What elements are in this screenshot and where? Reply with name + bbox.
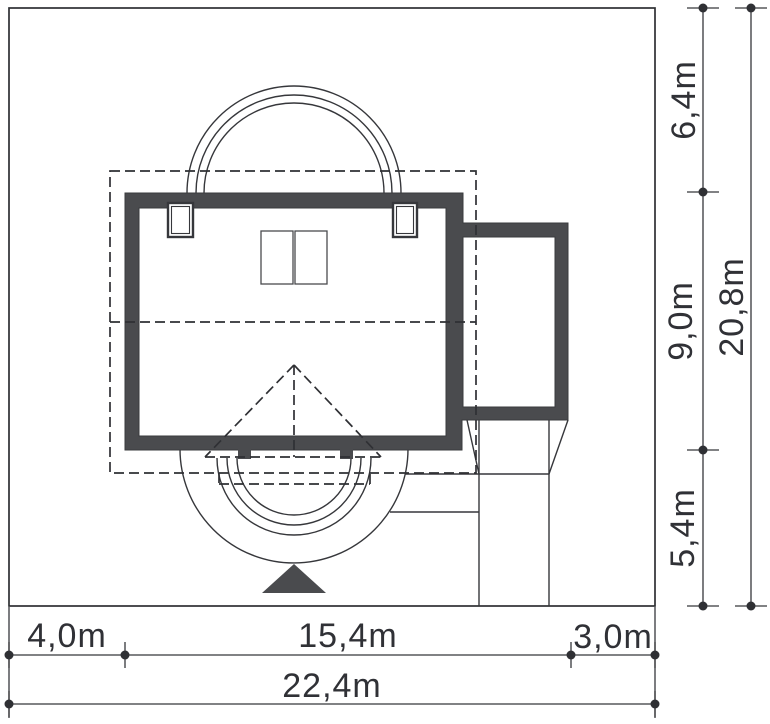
dim-label-bottom-total-22-4m: 22,4m (282, 669, 382, 703)
site-plan-drawing (0, 0, 770, 724)
dim-label-right-9-0m: 9,0m (664, 281, 698, 361)
dim-label-bottom-4-0m: 4,0m (27, 619, 107, 653)
dim-label-bottom-3-0m: 3,0m (573, 620, 653, 654)
dim-label-bottom-15-4m: 15,4m (298, 619, 398, 653)
dim-label-right-6-4m: 6,4m (667, 60, 701, 140)
dim-label-right-5-4m: 5,4m (666, 488, 700, 568)
site-plan: 6,4m 9,0m 5,4m 20,8m 4,0m 15,4m 3,0m 22,… (0, 0, 770, 724)
skylight (295, 231, 327, 284)
dim-label-right-total-20-8m: 20,8m (715, 257, 749, 357)
skylight (261, 231, 293, 284)
